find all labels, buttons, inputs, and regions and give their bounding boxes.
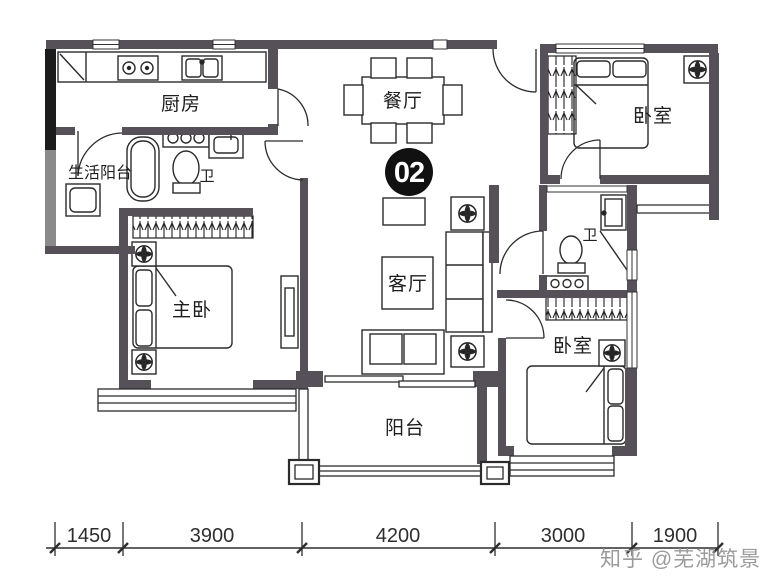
balcony-column [289,460,319,484]
kitchen-counter [58,52,266,82]
vanity-right-icon [546,276,588,291]
stove-icon [118,56,158,80]
window [213,40,235,49]
wall [122,127,268,135]
bay-window [98,389,296,411]
wall [600,175,718,184]
bathroom-right-label: 卫 [582,227,597,244]
wall [612,446,637,456]
bedroom2-bed [527,366,626,444]
wall [539,185,547,231]
kitchen-door-arc [278,89,308,126]
washing-machine-icon [66,184,100,216]
wall [123,208,253,216]
unit-badge-label: 02 [394,157,424,189]
window [433,40,447,49]
wardrobe [548,56,576,134]
pillow [136,310,152,346]
side-table [383,198,425,225]
pillow [608,369,623,404]
chair [371,58,396,78]
master-hall-door-arc [265,141,303,180]
wall [540,175,560,184]
pillow [577,61,610,77]
flower-icon [604,345,620,361]
wall [268,124,278,135]
balcony-column [481,462,509,484]
chair [407,58,432,78]
wall [473,371,500,387]
bedroom3-bed [574,58,648,148]
kitchen-label: 厨房 [161,93,201,115]
dimension-labels: 1450 3900 4200 3000 1900 [67,525,698,547]
wall [296,371,323,387]
wardrobe [133,216,253,238]
bedroom-bottom-right-label: 卧室 [553,335,593,357]
bedroom-top-right-label: 卧室 [633,105,673,127]
master-bedroom-label: 主卧 [172,299,212,321]
wall [268,49,278,89]
window [93,40,119,49]
corridor-wall-line [547,186,627,192]
floorplan-image: 厨房 餐厅 卧室 生活阳台 卫 主卧 客厅 卫 卧室 阳台 02 1450 39… [0,0,772,583]
wall [709,53,719,220]
wall [45,49,56,150]
pillow [613,61,646,77]
flower-icon [459,343,476,360]
living-room-label: 客厅 [388,273,428,295]
chair [407,123,432,143]
wall [253,380,302,389]
flower-icon [136,354,152,370]
pillow [608,406,623,441]
wall [489,185,499,263]
dimension-label: 1450 [67,525,112,547]
chair [371,123,396,143]
dining-label: 餐厅 [383,90,423,112]
wall [119,208,128,389]
pillow [136,270,152,306]
sofa-main [446,232,492,332]
wall [497,290,637,298]
wall [498,446,514,456]
shower-cabinet-icon [601,195,626,230]
window [556,44,644,53]
shower-partition [600,231,627,270]
flower-icon [136,246,152,262]
wall [540,48,548,175]
wall [498,338,506,450]
window [627,250,637,280]
flower-icon [459,205,476,222]
chair [344,85,363,115]
window [627,292,637,368]
wall [625,368,637,456]
bathroom-right-door-arc [500,231,543,274]
floorplan-svg: 厨房 餐厅 卧室 生活阳台 卫 主卧 客厅 卫 卧室 阳台 02 1450 39… [0,0,772,583]
service-balcony-label: 生活阳台 [68,164,132,182]
toilet-right-icon [558,236,585,273]
unit-badge: 02 [385,148,433,196]
chair [443,85,462,115]
balcony-label: 阳台 [385,417,425,439]
balcony-sliding-door [325,376,475,387]
dimension-label: 3000 [541,525,586,547]
bathroom-left-label: 卫 [199,168,214,185]
bedroom2-door-arc [506,300,544,338]
tv-cabinet [281,276,298,348]
washbasin-left-icon [209,132,243,158]
wall [477,387,487,464]
ac-ledge [637,205,709,213]
wall [300,178,308,389]
dimension-label: 4200 [376,525,421,547]
kitchen-sink-icon [182,56,222,80]
sofa-loveseat [362,330,444,374]
wall [45,150,56,246]
watermark: 知乎 @芜湖筑景 [600,548,761,571]
bay-window [510,456,614,476]
dimension-label: 3900 [190,525,235,547]
wall [56,127,75,135]
wall [119,380,151,389]
entry-door-arc [493,49,536,92]
flower-icon [689,61,706,78]
toilet-left-icon [173,151,200,193]
dimension-label: 1900 [653,525,698,547]
